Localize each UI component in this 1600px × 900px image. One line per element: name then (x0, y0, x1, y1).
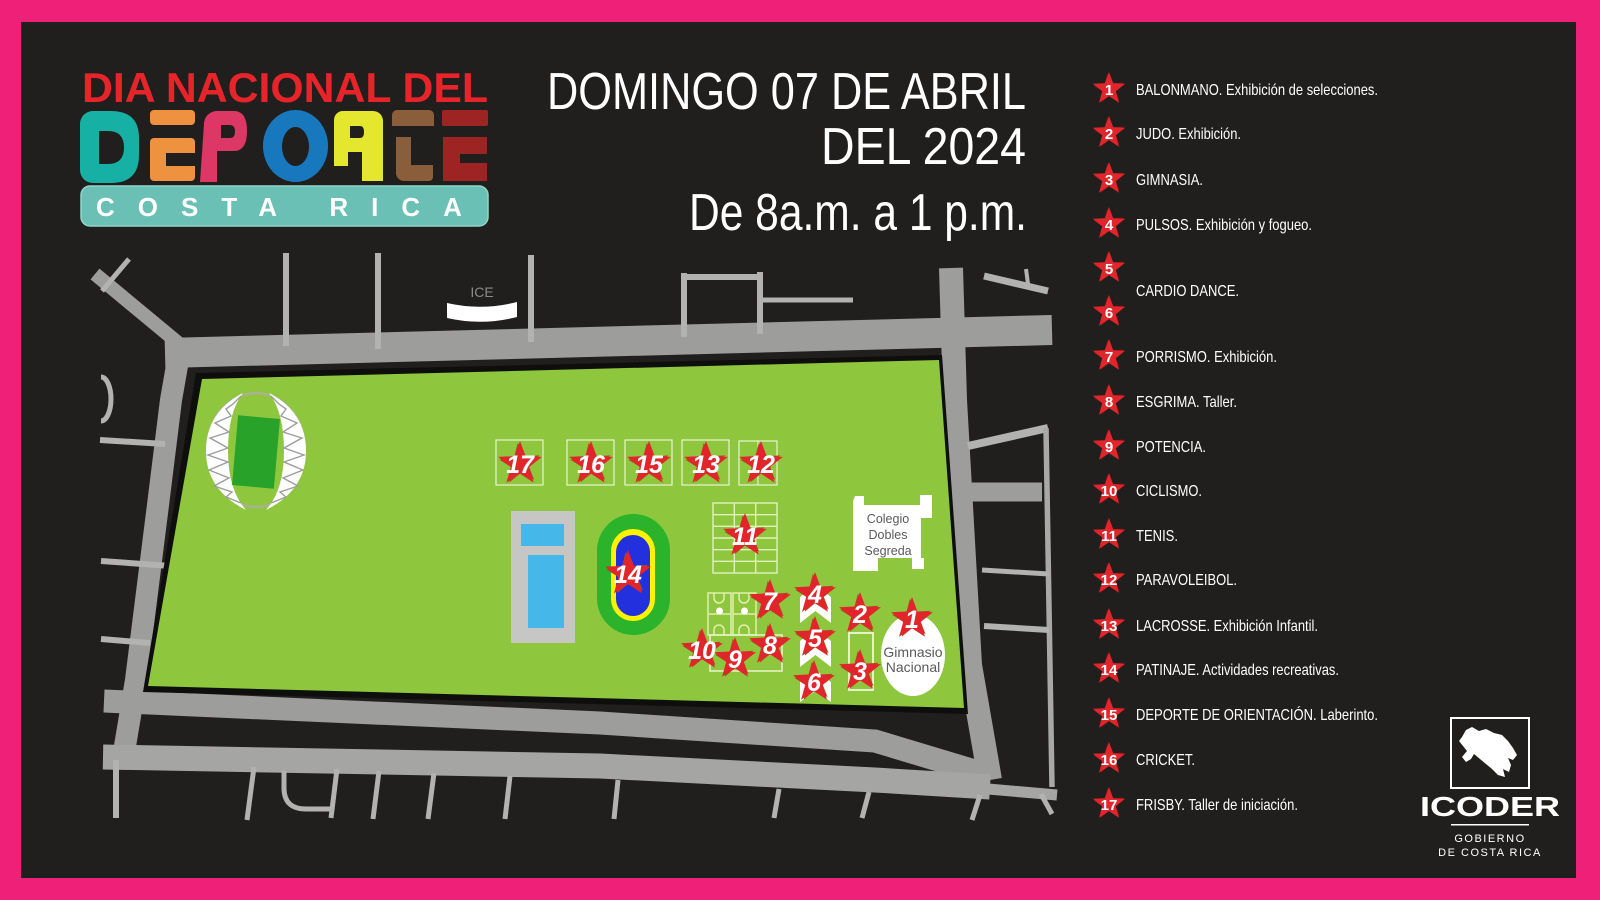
svg-text:14: 14 (1101, 662, 1118, 679)
svg-text:11: 11 (732, 523, 758, 551)
svg-text:TENIS.: TENIS. (1136, 528, 1178, 545)
svg-text:CICLISMO.: CICLISMO. (1136, 483, 1202, 500)
svg-text:PORRISMO. Exhibición.: PORRISMO. Exhibición. (1136, 349, 1277, 366)
svg-text:8: 8 (763, 632, 777, 660)
svg-text:4: 4 (1105, 217, 1114, 234)
svg-text:3: 3 (853, 658, 867, 686)
svg-text:1: 1 (1105, 82, 1113, 99)
svg-text:13: 13 (1101, 618, 1118, 635)
svg-text:17: 17 (506, 451, 535, 479)
svg-text:Colegio: Colegio (867, 512, 909, 526)
svg-text:JUDO. Exhibición.: JUDO. Exhibición. (1136, 126, 1241, 143)
svg-text:GOBIERNO: GOBIERNO (1454, 833, 1525, 845)
svg-text:7: 7 (763, 588, 778, 616)
svg-text:Gimnasio: Gimnasio (883, 644, 942, 660)
svg-text:CARDIO DANCE.: CARDIO DANCE. (1136, 283, 1239, 300)
svg-text:PULSOS. Exhibición y fogueo.: PULSOS. Exhibición y fogueo. (1136, 217, 1312, 234)
svg-text:ESGRIMA. Taller.: ESGRIMA. Taller. (1136, 394, 1237, 411)
svg-text:Segreda: Segreda (864, 544, 911, 558)
svg-text:14: 14 (614, 561, 642, 589)
svg-text:17: 17 (1101, 797, 1118, 814)
svg-text:De 8a.m. a 1 p.m.: De 8a.m. a 1 p.m. (689, 184, 1027, 242)
svg-text:6: 6 (807, 669, 822, 697)
svg-text:DOMINGO 07 DE ABRIL: DOMINGO 07 DE ABRIL (547, 63, 1026, 121)
svg-text:2: 2 (1105, 126, 1113, 143)
svg-text:PATINAJE. Actividades recreati: PATINAJE. Actividades recreativas. (1136, 662, 1339, 679)
svg-text:BALONMANO. Exhibición de selec: BALONMANO. Exhibición de selecciones. (1136, 82, 1378, 99)
svg-text:1: 1 (905, 606, 919, 634)
svg-text:4: 4 (807, 581, 822, 609)
svg-text:CRICKET.: CRICKET. (1136, 752, 1195, 769)
svg-text:15: 15 (1101, 707, 1118, 724)
svg-text:9: 9 (728, 646, 742, 674)
svg-text:9: 9 (1105, 439, 1113, 456)
svg-text:10: 10 (688, 637, 716, 665)
svg-text:5: 5 (808, 625, 823, 653)
svg-text:LACROSSE. Exhibición Infantil.: LACROSSE. Exhibición Infantil. (1136, 618, 1318, 635)
svg-text:ICE: ICE (470, 284, 493, 300)
svg-text:DEL 2024: DEL 2024 (821, 118, 1026, 176)
svg-text:ICODER: ICODER (1420, 791, 1560, 822)
svg-text:GIMNASIA.: GIMNASIA. (1136, 172, 1203, 189)
svg-text:DIA NACIONAL DEL: DIA NACIONAL DEL (82, 64, 488, 111)
svg-text:DEPORTE DE ORIENTACIÓN. Laberi: DEPORTE DE ORIENTACIÓN. Laberinto. (1136, 705, 1378, 724)
svg-text:DE COSTA RICA: DE COSTA RICA (1438, 847, 1542, 859)
svg-text:13: 13 (692, 451, 720, 479)
svg-text:3: 3 (1105, 172, 1113, 189)
svg-text:Nacional: Nacional (886, 659, 940, 675)
svg-text:12: 12 (747, 451, 775, 479)
svg-text:FRISBY. Taller de iniciación.: FRISBY. Taller de iniciación. (1136, 797, 1298, 814)
svg-text:8: 8 (1105, 394, 1113, 411)
svg-text:10: 10 (1101, 483, 1118, 500)
svg-text:7: 7 (1105, 349, 1113, 366)
svg-text:16: 16 (1101, 752, 1118, 769)
svg-text:COSTA RICA: COSTA RICA (96, 192, 485, 222)
svg-text:2: 2 (852, 601, 867, 629)
svg-text:PARAVOLEIBOL.: PARAVOLEIBOL. (1136, 572, 1237, 589)
svg-text:15: 15 (635, 451, 664, 479)
svg-text:12: 12 (1101, 572, 1118, 589)
svg-text:6: 6 (1105, 305, 1113, 322)
svg-text:Dobles: Dobles (869, 528, 908, 542)
svg-text:5: 5 (1105, 261, 1113, 278)
svg-text:16: 16 (577, 451, 606, 479)
svg-text:11: 11 (1101, 528, 1117, 545)
svg-text:POTENCIA.: POTENCIA. (1136, 439, 1206, 456)
